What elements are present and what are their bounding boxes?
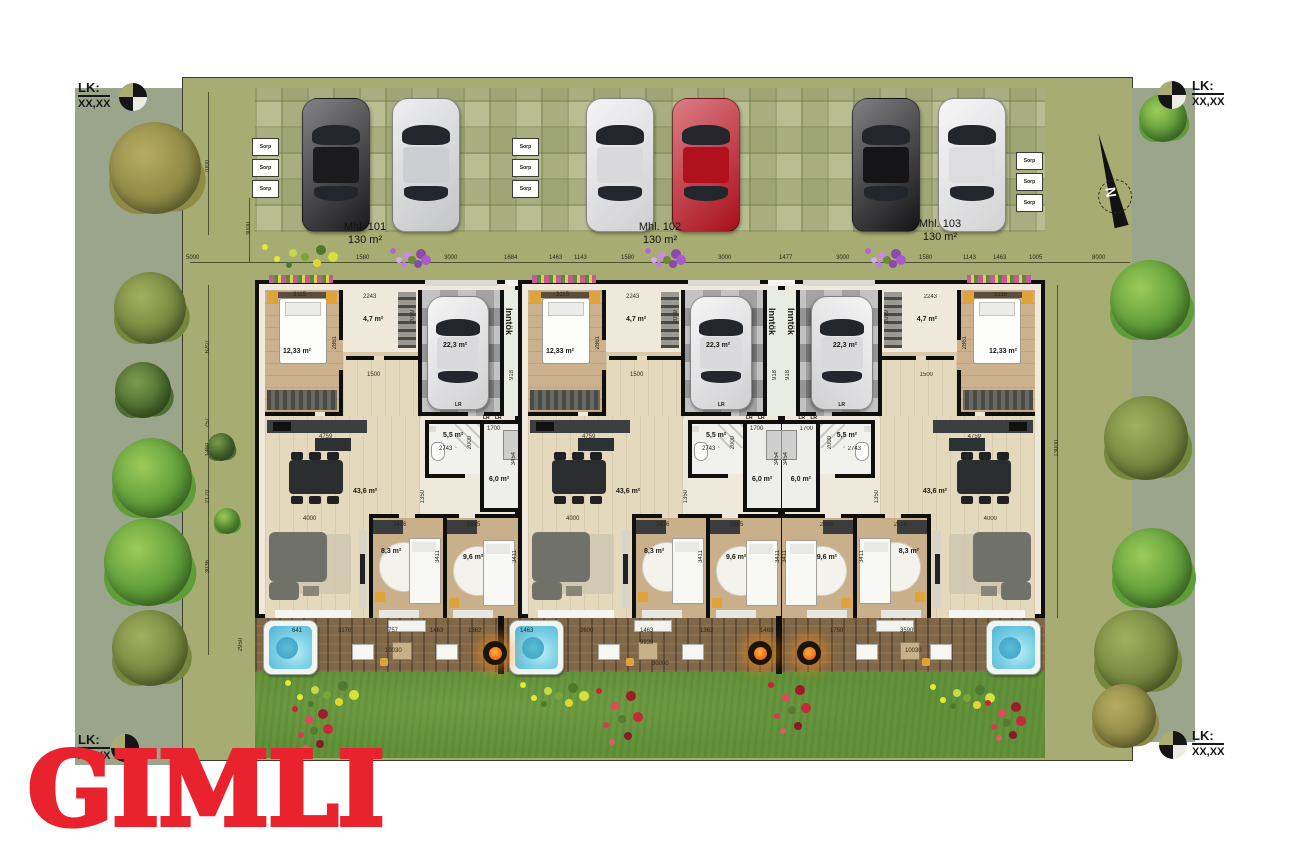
tree-olive — [114, 272, 186, 344]
interior-wall — [369, 518, 373, 618]
window-flower-box — [967, 275, 1031, 283]
site-dimension: 2950 — [238, 638, 244, 651]
stall-id: Mhl. 103 — [905, 218, 975, 231]
lk-label: LK: — [78, 80, 110, 95]
flower-dot — [768, 682, 774, 688]
room-label: 8,3 m² — [644, 548, 664, 555]
interior-wall — [384, 356, 420, 360]
car-roof — [403, 147, 449, 184]
garage-door — [688, 280, 760, 286]
coffee-table — [566, 586, 582, 596]
flower-dot — [603, 722, 609, 728]
room-label: 5,5 m² — [706, 432, 726, 439]
window-flower-box — [532, 275, 596, 283]
stall-area: 130 m² — [330, 234, 400, 247]
parking-stall-label: Mhl. 102130 m² — [625, 221, 695, 246]
interior-wall — [871, 420, 875, 478]
site-dimension: 3000 — [836, 255, 849, 261]
lk-label: LK: — [1192, 728, 1224, 743]
dining-chair — [979, 496, 991, 504]
dimension-label: 4000 — [303, 516, 316, 522]
car-rear-window — [864, 186, 909, 201]
room-label: LR — [838, 402, 845, 408]
garage-car — [811, 296, 873, 410]
dimension-label: 2743 — [848, 446, 861, 452]
hot-tub — [263, 620, 318, 675]
flower-dot — [349, 690, 359, 700]
interior-wall — [475, 514, 518, 518]
nightstand — [530, 292, 541, 303]
interior-wall — [782, 514, 825, 518]
interior-wall — [425, 420, 518, 424]
parked-car-black — [302, 98, 370, 232]
site-dimension: 3000 — [444, 255, 457, 261]
flower-dot — [285, 680, 291, 686]
room-label: 43,6 m² — [616, 488, 640, 495]
flower-dot — [991, 724, 997, 730]
interior-wall — [743, 508, 781, 512]
interior-wall — [418, 290, 422, 416]
dimension-label: 1500 — [367, 372, 380, 378]
room-label: 12,33 m² — [546, 348, 574, 355]
car-rear-window — [701, 371, 742, 383]
dining-chair — [590, 452, 602, 460]
bed-pillows — [548, 302, 584, 316]
fire-pit-flame — [489, 647, 502, 660]
room-label: 22,3 m² — [706, 342, 730, 349]
sofa-chaise — [532, 582, 562, 600]
bedroom-rug — [530, 390, 600, 410]
stall-id: Mhl. 101 — [330, 221, 400, 234]
survey-marker-bottom-right — [1159, 731, 1187, 759]
dining-chair — [291, 452, 303, 460]
waste-bin: Sorp — [512, 159, 539, 177]
waste-bin-group: SorpSorpSorp — [512, 138, 539, 201]
stool — [638, 592, 648, 602]
waste-bin-group: SorpSorpSorp — [252, 138, 279, 201]
flower-dot — [774, 713, 780, 719]
interior-wall — [880, 356, 916, 360]
flower-dot — [568, 683, 578, 693]
flower-dot — [316, 245, 326, 255]
interior-wall — [647, 356, 683, 360]
interior-wall — [678, 514, 722, 518]
site-dimension: 3590 — [900, 628, 913, 634]
parked-car-white — [938, 98, 1006, 232]
interior-wall — [528, 412, 578, 416]
flower-dot — [262, 244, 268, 250]
parking-stall-label: Mhl. 101130 m² — [330, 221, 400, 246]
dimension-label: 3454 — [774, 452, 780, 465]
interior-wall — [480, 420, 484, 512]
site-dimension: 2600 — [580, 628, 593, 634]
interior-wall — [782, 508, 820, 512]
flower-dot — [390, 248, 396, 254]
unit-2-floorplan: 12,33 m²4,7 m²22,3 m²5,5 m²6,0 m²43,6 m²… — [518, 280, 782, 618]
room-label: 22,3 m² — [443, 342, 467, 349]
bedroom2-window — [642, 610, 682, 618]
dining-chair — [327, 496, 339, 504]
dimension-label: 1500 — [630, 372, 643, 378]
stool — [712, 598, 722, 608]
car-roof — [863, 147, 909, 184]
flower-dot — [1011, 702, 1021, 712]
tv — [935, 554, 940, 584]
room-label: LR — [810, 415, 817, 421]
flower-bush-red — [985, 700, 1019, 740]
interior-wall — [738, 514, 781, 518]
dining-chair — [554, 452, 566, 460]
interior-wall — [325, 412, 343, 416]
sofa-chaise — [1001, 582, 1031, 600]
interior-wall — [443, 518, 447, 618]
dimension-label: 4759 — [319, 434, 332, 440]
window-flower-box — [269, 275, 333, 283]
garage-car — [427, 296, 489, 410]
dimension-label: 4759 — [968, 434, 981, 440]
flower-dot — [289, 249, 297, 257]
dining-chair — [961, 452, 973, 460]
room-label: 8,3 m² — [899, 548, 919, 555]
coffee-table — [303, 586, 319, 596]
stove — [273, 422, 291, 431]
flower-bush-purple — [865, 248, 899, 264]
room-label: 12,33 m² — [989, 348, 1017, 355]
site-dimension: 1580 — [919, 255, 932, 261]
waste-bin: Sorp — [1016, 152, 1043, 170]
flower-bush-purple — [390, 248, 424, 264]
room-label: LR — [798, 415, 805, 421]
interior-wall — [369, 514, 399, 518]
sofa — [532, 532, 590, 582]
dimension-label: 1350 — [420, 490, 426, 503]
interior-wall — [425, 420, 429, 478]
room-label: 6,0 m² — [489, 476, 509, 483]
interior-wall — [346, 356, 374, 360]
flower-dot — [1009, 731, 1017, 739]
nightstand — [326, 292, 337, 303]
interior-wall — [602, 290, 606, 340]
room-label: 4,7 m² — [917, 316, 937, 323]
flower-dot — [633, 712, 643, 722]
deck-lantern — [626, 658, 634, 666]
patio-door — [949, 610, 1025, 618]
interior-wall — [706, 518, 710, 618]
deck-furniture — [682, 644, 704, 660]
car-windshield — [436, 319, 480, 336]
nightstand — [589, 292, 600, 303]
flower-dot — [297, 694, 303, 700]
interior-wall — [632, 514, 662, 518]
flower-dot — [780, 728, 786, 734]
room-label: 22,3 m² — [833, 342, 857, 349]
dining-table — [289, 460, 343, 494]
car-roof — [683, 147, 729, 184]
room-label: 43,6 m² — [923, 488, 947, 495]
lk-label: LK: — [1192, 78, 1224, 93]
dining-chair — [572, 452, 584, 460]
dimension-label: 2416 — [894, 522, 907, 528]
dining-chair — [572, 496, 584, 504]
site-dimension: 8000 — [1092, 255, 1105, 261]
fire-pit — [748, 641, 772, 665]
site-dimension: 9939 — [640, 640, 653, 646]
site-dimension: 3170 — [338, 628, 351, 634]
tree-autumn — [1092, 684, 1156, 748]
bed-pillow — [486, 544, 510, 554]
dimension-label: 2743 — [439, 446, 452, 452]
dimension-label: 3115 — [994, 292, 1007, 298]
nightstand — [1022, 292, 1033, 303]
dimension-label: 1350 — [874, 490, 880, 503]
interior-wall — [835, 474, 875, 478]
dimension-label: 1700 — [487, 426, 500, 432]
site-dimension: 10030 — [385, 648, 402, 654]
flower-dot — [953, 689, 961, 697]
deck-lantern — [922, 658, 930, 666]
site-dimension: 1750 — [830, 628, 843, 634]
interior-wall — [985, 412, 1035, 416]
site-dimension: 1463 — [760, 628, 773, 634]
interior-wall — [339, 370, 343, 412]
flower-dot — [963, 694, 971, 702]
flower-dot — [311, 686, 319, 694]
hot-tub-swirl — [522, 637, 544, 659]
interior-wall — [588, 412, 606, 416]
flower-dot — [645, 248, 651, 254]
interior-wall — [632, 518, 636, 618]
hall-floor — [606, 356, 683, 416]
sofa — [269, 532, 327, 582]
flower-dot — [611, 702, 619, 710]
tree-olive — [1094, 610, 1178, 694]
interior-wall — [480, 508, 518, 512]
room-label: LR — [455, 402, 462, 408]
dining-table — [552, 460, 606, 494]
car-windshield — [820, 319, 864, 336]
stove — [1009, 422, 1027, 431]
sofa-chaise — [269, 582, 299, 600]
garage-car — [690, 296, 752, 410]
car-windshield — [862, 125, 911, 145]
tree-bright — [1112, 528, 1192, 608]
car-windshield — [402, 125, 451, 145]
bed-pillow — [749, 544, 773, 554]
dimension-label: 2000 — [730, 436, 736, 449]
interior-wall — [957, 370, 961, 412]
tv — [360, 554, 365, 584]
interior-wall — [265, 412, 315, 416]
car-windshield — [596, 125, 645, 145]
nightstand — [963, 292, 974, 303]
tree-bright — [112, 438, 192, 518]
interior-wall — [927, 518, 931, 618]
dimension-label: 3411 — [782, 550, 788, 563]
dimension-label: 918 — [785, 370, 791, 380]
deck-furniture — [930, 644, 952, 660]
room-label: LR — [483, 415, 490, 421]
dining-chair — [590, 496, 602, 504]
dining-chair — [997, 496, 1009, 504]
fire-pit — [797, 641, 821, 665]
parked-car-red — [672, 98, 740, 232]
flower-dot — [940, 697, 946, 703]
flower-dot — [788, 706, 796, 714]
dining-chair — [327, 452, 339, 460]
stool — [375, 592, 385, 602]
entrance-label: Inntök — [786, 308, 796, 335]
dimension-label: 2099 — [884, 310, 890, 323]
room-label: 4,7 m² — [626, 316, 646, 323]
site-dimension: 10030 — [905, 648, 922, 654]
flower-bush-yellow — [520, 682, 584, 704]
site-dimension: 1580 — [356, 255, 369, 261]
dimension-label: 1350 — [683, 490, 689, 503]
dimension-label: 3115 — [556, 292, 569, 298]
bedroom3-window — [807, 610, 847, 618]
site-dimension: 641 — [292, 628, 302, 634]
dimension-label: 2835 — [820, 522, 833, 528]
interior-wall — [339, 290, 343, 340]
car-rear-window — [822, 371, 863, 383]
site-dimension: 6207 — [205, 340, 211, 353]
site-dimension: 5000 — [186, 255, 199, 261]
flower-dot — [985, 700, 991, 706]
dimension-label: 4000 — [566, 516, 579, 522]
car-rear-window — [684, 186, 729, 201]
parking-stall-label: Mhl. 103130 m² — [905, 218, 975, 243]
flower-dot — [973, 701, 981, 709]
interior-wall — [782, 420, 875, 424]
interior-wall — [841, 514, 885, 518]
dining-chair — [291, 496, 303, 504]
fire-pit — [483, 641, 507, 665]
car-rear-window — [598, 186, 643, 201]
parked-car-black — [852, 98, 920, 232]
corner-label-bottom-right: LK: XX,XX — [1192, 728, 1224, 758]
garage-door — [803, 280, 875, 286]
site-dimension: 757 — [205, 418, 211, 428]
dimension-label: 3411 — [698, 550, 704, 563]
site-dimension: 1463 — [640, 628, 653, 634]
site-dimension: 1360 — [205, 443, 211, 456]
waste-bin-group: SorpSorpSorp — [1016, 152, 1043, 215]
car-roof — [597, 147, 643, 184]
room-label: LR — [746, 415, 753, 421]
waste-bin: Sorp — [1016, 173, 1043, 191]
tree-dark — [207, 433, 235, 461]
room-label: 4,7 m² — [363, 316, 383, 323]
tree-olive — [112, 610, 188, 686]
waste-bin: Sorp — [252, 180, 279, 198]
site-dimension: 3000 — [718, 255, 731, 261]
site-dimension: 1362 — [700, 628, 713, 634]
car-windshield — [948, 125, 997, 145]
site-dimension: 1463 — [549, 255, 562, 261]
room-label: 5,5 m² — [837, 432, 857, 439]
dimension-label: 2861 — [595, 336, 601, 349]
interior-wall — [853, 518, 857, 618]
dimension-label: 3411 — [859, 550, 865, 563]
dimension-label: 2416 — [656, 522, 669, 528]
room-label: 6,0 m² — [791, 476, 811, 483]
hot-tub-swirl — [999, 637, 1021, 659]
flower-dot — [338, 681, 348, 691]
lk-value: XX,XX — [1192, 743, 1224, 758]
stove — [536, 422, 554, 431]
flower-dot — [624, 732, 632, 740]
flower-dot — [975, 685, 985, 695]
tree-bright — [214, 508, 240, 534]
room-label: 8,3 m² — [381, 548, 401, 555]
bedroom3-window — [716, 610, 756, 618]
dimension-label: 2000 — [467, 436, 473, 449]
dimension-label: 4759 — [582, 434, 595, 440]
stool — [841, 598, 851, 608]
dimension-label: 2835 — [467, 522, 480, 528]
site-dimension: 1463 — [993, 255, 1006, 261]
flower-dot — [544, 687, 552, 695]
dimension-label: 3115 — [293, 292, 306, 298]
bedroom3-window — [453, 610, 493, 618]
flower-dot — [301, 253, 309, 261]
tv — [623, 554, 628, 584]
dimension-label: 2416 — [393, 522, 406, 528]
waste-bin: Sorp — [512, 138, 539, 156]
bedroom-rug — [963, 390, 1033, 410]
dimension-label: 2743 — [702, 446, 715, 452]
flower-dot — [305, 716, 313, 724]
flower-dot — [579, 691, 589, 701]
interior-wall — [688, 420, 692, 478]
dimension-label: 1700 — [750, 426, 763, 432]
room-label: 9,6 m² — [463, 554, 483, 561]
site-dimension: 1463 — [520, 628, 533, 634]
flower-dot — [930, 684, 936, 690]
flower-dot — [596, 688, 602, 694]
waste-bin: Sorp — [512, 180, 539, 198]
stall-id: Mhl. 102 — [625, 221, 695, 234]
flower-dot — [782, 694, 790, 702]
corner-label-top-right: LK: XX,XX — [1192, 78, 1224, 108]
bed-pillow — [864, 542, 888, 552]
tree-dark — [115, 362, 171, 418]
deck-furniture — [436, 644, 458, 660]
bed-pillow — [412, 542, 436, 552]
dimension-label: 3454 — [511, 452, 517, 465]
hot-tub — [509, 620, 564, 675]
dimension-label: 2243 — [626, 294, 639, 300]
dimension-label: 4000 — [984, 516, 997, 522]
car-windshield — [312, 125, 361, 145]
dimension-label: 1500 — [920, 372, 933, 378]
dining-chair — [309, 452, 321, 460]
car-roof — [313, 147, 359, 184]
site-dimension: 3036 — [205, 560, 211, 573]
dining-chair — [554, 496, 566, 504]
site-dimension: 7000 — [205, 160, 211, 173]
site-dimension: 1684 — [504, 255, 517, 261]
interior-wall — [688, 474, 728, 478]
interior-wall — [602, 370, 606, 412]
deck-furniture — [352, 644, 374, 660]
bed-pillow — [790, 544, 814, 554]
stall-area: 130 m² — [625, 234, 695, 247]
site-dimension: 3000 — [246, 222, 252, 235]
car-roof — [949, 147, 995, 184]
sofa — [973, 532, 1031, 582]
flower-dot — [1003, 719, 1011, 727]
